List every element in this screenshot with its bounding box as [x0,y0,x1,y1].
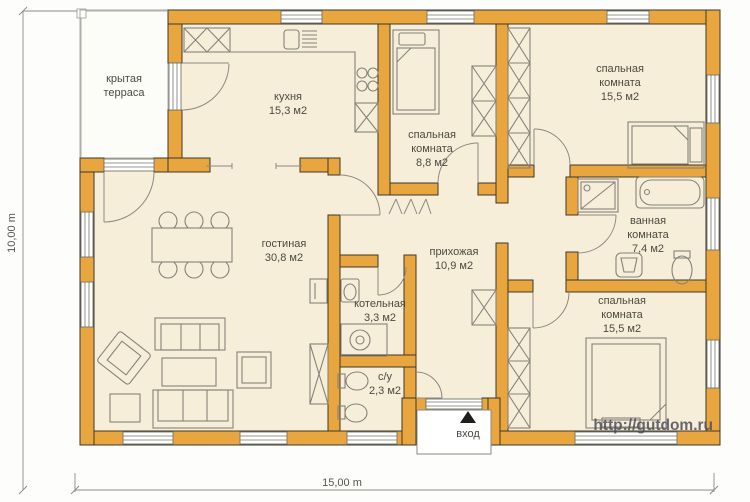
window [427,11,474,23]
floor-plan-page: 15,00 m 10,00 m [0,0,750,502]
window [707,340,719,388]
window [607,11,649,23]
entrance-porch: вход [417,410,491,454]
sofa [155,318,225,350]
window [81,212,93,257]
sofa [153,390,233,428]
window [707,198,719,250]
window [240,432,287,444]
window [707,75,719,123]
terrace-living-door-panel [104,159,154,171]
terrace-kitchen-door-leaf-panel [169,63,181,110]
watermark: http://gutdom.ru [593,417,713,434]
floor-plan: 15,00 m 10,00 m [0,0,750,502]
entrance-door-panel [426,399,482,409]
window [81,282,93,327]
label-bedroom-bottom-right: спальнаякомната15,5 м2 [598,295,646,335]
dining-table [152,228,232,262]
window [281,11,322,23]
dimension-width-label: 15,00 m [322,477,362,489]
window [347,432,397,444]
dimension-height-label: 10,00 m [6,213,18,253]
armchair [237,352,271,388]
entrance-label: вход [456,428,480,440]
label-bathroom: ваннаякомната7,4 м2 [627,215,669,255]
label-bedroom-top-right: спальнаякомната15,5 м2 [596,63,644,103]
window [123,432,173,444]
